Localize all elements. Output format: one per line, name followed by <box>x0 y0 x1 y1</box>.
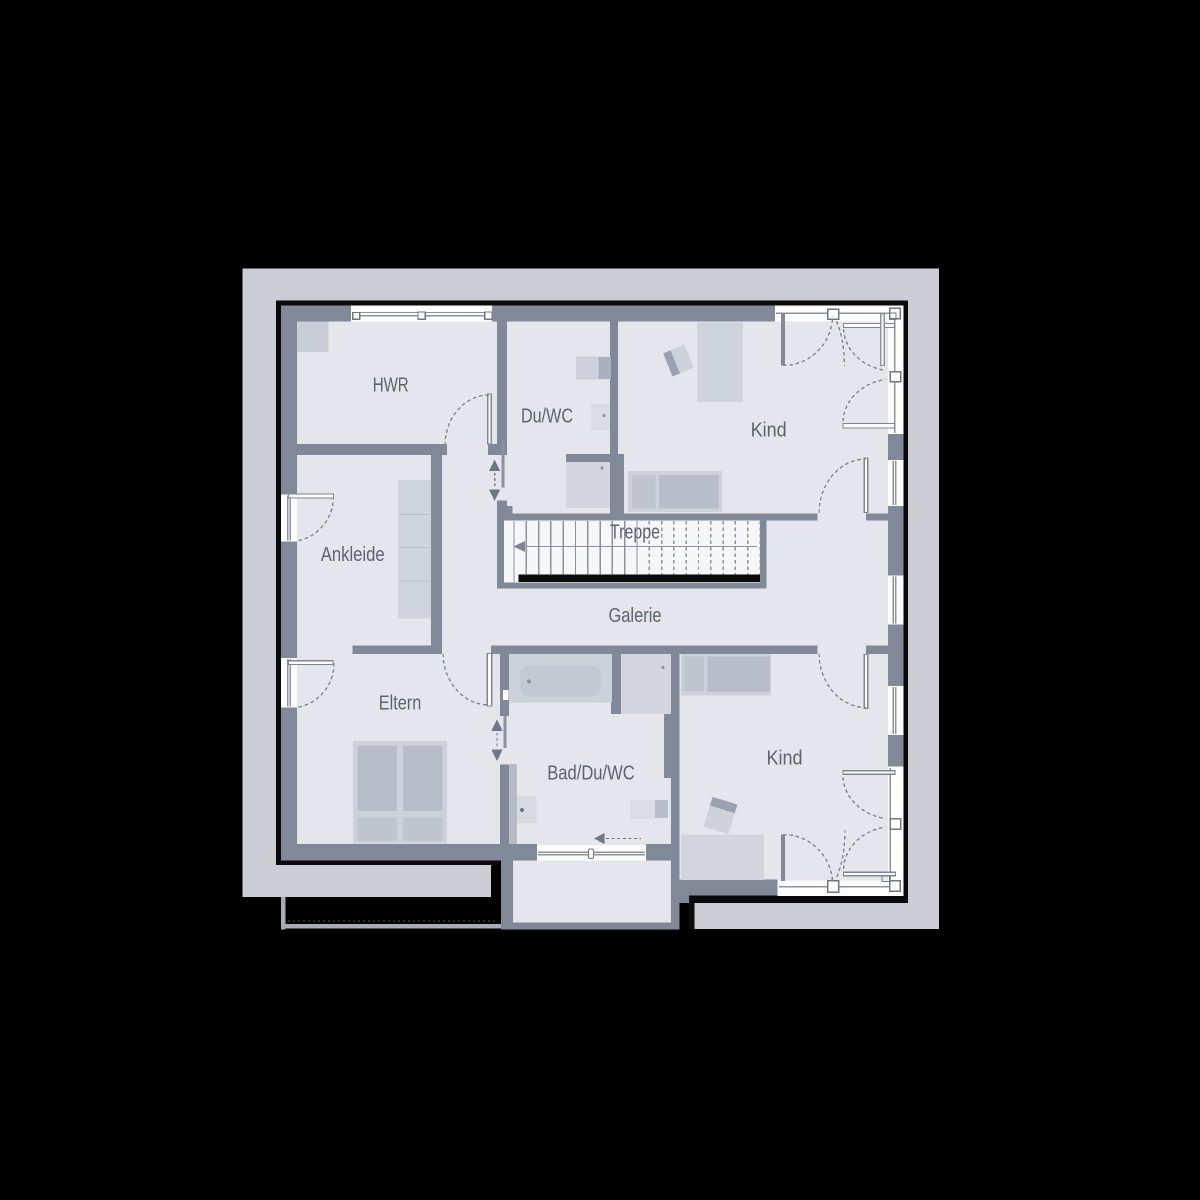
svg-text:Ankleide: Ankleide <box>321 543 385 566</box>
svg-text:Kind: Kind <box>767 747 803 770</box>
svg-text:Galerie: Galerie <box>609 604 662 627</box>
svg-text:Bad/Du/WC: Bad/Du/WC <box>547 762 635 785</box>
svg-text:Kind: Kind <box>751 419 787 442</box>
svg-text:Treppe: Treppe <box>610 521 660 544</box>
svg-text:Du/WC: Du/WC <box>521 405 573 428</box>
svg-text:HWR: HWR <box>373 374 409 397</box>
svg-text:Eltern: Eltern <box>379 692 422 715</box>
